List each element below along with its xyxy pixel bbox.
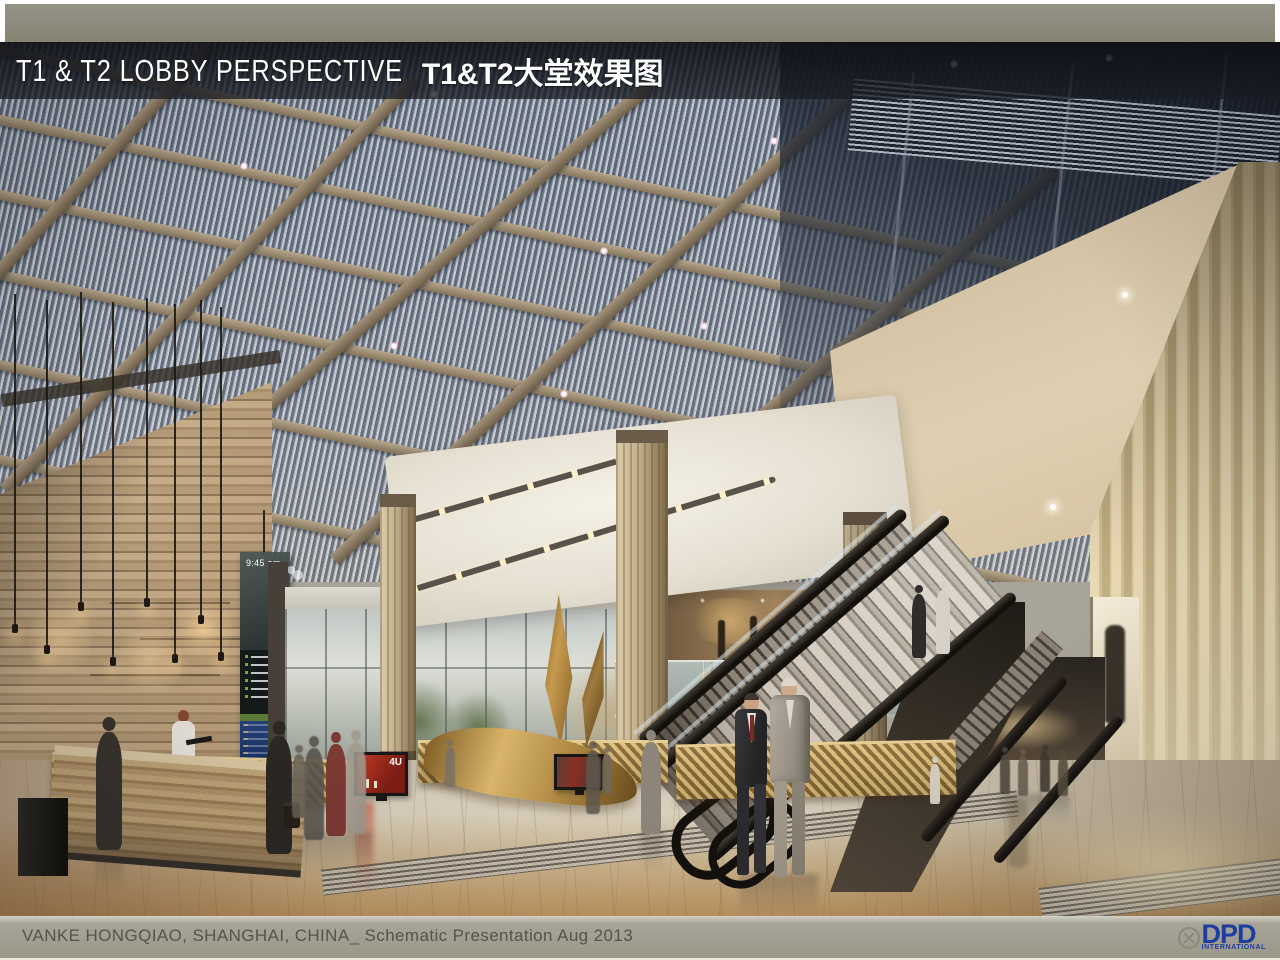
slide-title-en: T1 & T2 LOBBY PERSPECTIVE <box>16 53 403 89</box>
person <box>586 750 600 814</box>
person <box>641 742 661 834</box>
dpd-logo-subtitle: INTERNATIONAL <box>1202 944 1266 951</box>
top-bar <box>5 4 1275 42</box>
ceiling-spotlight <box>240 162 248 170</box>
soffit-downlight <box>700 598 705 603</box>
white-hair <box>781 678 797 686</box>
person <box>602 754 612 794</box>
screen-label: 4U <box>389 757 402 768</box>
person <box>1000 754 1010 794</box>
leg <box>737 784 749 875</box>
floor-reflection <box>641 832 663 872</box>
person <box>346 742 366 834</box>
pendant-light-cord <box>112 302 114 657</box>
person <box>1040 752 1050 792</box>
person <box>1018 756 1028 796</box>
wall-light-pool <box>1020 812 1280 916</box>
soffit-downlight-sparkle <box>1050 504 1056 510</box>
totem-cable <box>263 510 265 554</box>
businessman-dark-suit <box>733 693 771 875</box>
person <box>912 594 926 658</box>
hair <box>744 693 759 700</box>
presentation-slide: 9:45 am <box>0 0 1280 960</box>
screen-figure <box>366 779 369 788</box>
footer-caption: VANKE HONGQIAO, SHANGHAI, CHINA_ Schemat… <box>22 926 633 946</box>
ceiling-spotlight <box>700 322 708 330</box>
stone-column <box>380 494 416 760</box>
pendant-light-cord <box>14 294 16 624</box>
person <box>304 748 324 840</box>
footer-bar: VANKE HONGQIAO, SHANGHAI, CHINA_ Schemat… <box>0 916 1280 960</box>
display-figure <box>1105 625 1125 723</box>
title-band: T1 & T2 LOBBY PERSPECTIVE T1&T2大堂效果图 <box>0 42 1280 99</box>
businessman-gray-suit <box>768 678 812 878</box>
leg <box>754 784 766 873</box>
leg <box>792 781 805 875</box>
person <box>96 732 122 850</box>
person <box>936 590 950 654</box>
gold-bench <box>676 740 957 800</box>
dpd-logo: DPD INTERNATIONAL <box>1178 921 1266 951</box>
soffit-downlight <box>760 598 765 603</box>
person <box>445 747 455 787</box>
lobby-rendering: 9:45 am <box>0 42 1280 916</box>
person <box>292 754 306 818</box>
slide-title-zh: T1&T2大堂效果图 <box>422 49 664 93</box>
pendant-light-cord <box>80 292 82 602</box>
ceiling-spotlight <box>770 137 778 145</box>
ceiling-spotlight <box>390 342 398 350</box>
leg <box>774 781 787 877</box>
screen-figure <box>374 781 377 788</box>
pendant-light-cord <box>200 300 202 615</box>
person <box>930 764 940 804</box>
pendant-light-cord <box>46 300 48 645</box>
crossed-circle-icon <box>1178 927 1200 949</box>
desk-cabinet <box>18 798 68 876</box>
soffit-downlight-sparkle <box>1122 292 1128 298</box>
pendant-light-cord <box>220 307 222 652</box>
person <box>266 736 292 854</box>
tie <box>750 715 754 741</box>
pendant-light-cord <box>174 304 176 654</box>
ceiling-spotlight <box>560 390 568 398</box>
person <box>326 744 346 836</box>
person <box>1058 756 1068 796</box>
ceiling-spotlight <box>600 247 608 255</box>
pendant-light-cord <box>146 298 148 598</box>
